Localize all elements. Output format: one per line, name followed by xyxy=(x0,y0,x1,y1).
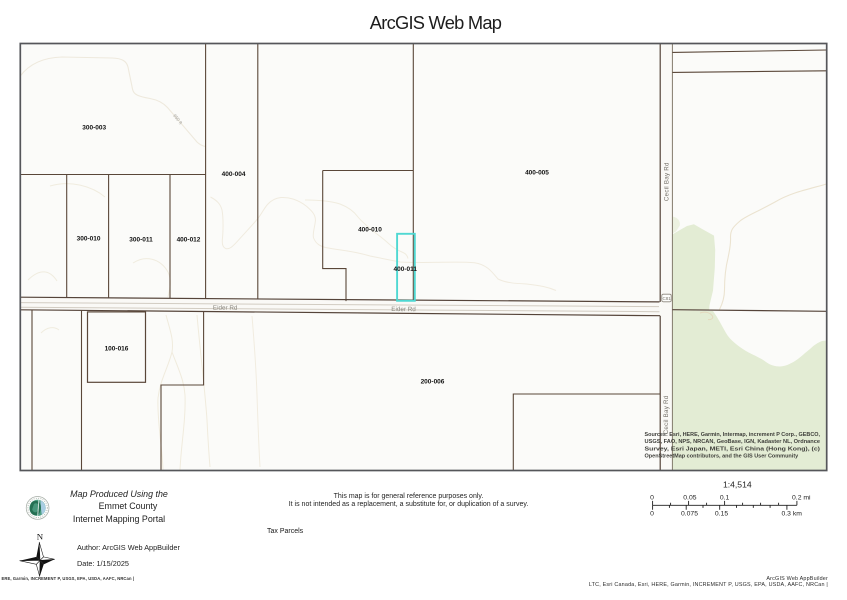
svg-text:0: 0 xyxy=(650,494,654,501)
svg-text:0: 0 xyxy=(650,511,654,518)
svg-text:Cecil Bay Rd: Cecil Bay Rd xyxy=(664,162,671,201)
svg-text:300-010: 300-010 xyxy=(77,235,101,242)
svg-text:200-006: 200-006 xyxy=(421,378,445,385)
svg-text:Eider Rd: Eider Rd xyxy=(391,306,416,313)
svg-text:Eider Rd: Eider Rd xyxy=(213,305,238,312)
svg-text:400-004: 400-004 xyxy=(222,171,246,178)
svg-text:100-016: 100-016 xyxy=(105,345,129,352)
svg-text:0.075: 0.075 xyxy=(681,511,698,518)
svg-text:300-011: 300-011 xyxy=(129,236,153,243)
svg-text:400-012: 400-012 xyxy=(177,236,201,243)
svg-text:Cecil Bay Rd: Cecil Bay Rd xyxy=(663,395,670,434)
svg-text:400-010: 400-010 xyxy=(358,227,382,234)
svg-text:0.15: 0.15 xyxy=(715,511,728,518)
svg-text:1:4,514: 1:4,514 xyxy=(723,480,752,490)
svg-text:0.1: 0.1 xyxy=(720,494,730,501)
svg-text:C81: C81 xyxy=(662,296,671,301)
svg-text:0.3 km: 0.3 km xyxy=(781,511,802,518)
svg-text:0.05: 0.05 xyxy=(683,494,696,501)
svg-text:OpenStreetMap contributors, an: OpenStreetMap contributors, and the GIS … xyxy=(645,454,800,460)
svg-text:0.2 mi: 0.2 mi xyxy=(792,494,811,501)
svg-text:Sources: Esri, HERE, Garmin, I: Sources: Esri, HERE, Garmin, Intermap, i… xyxy=(645,432,821,438)
svg-text:USGS, FAO, NPS, NRCAN, GeoBase: USGS, FAO, NPS, NRCAN, GeoBase, IGN, Kad… xyxy=(645,439,821,445)
svg-text:N: N xyxy=(37,531,44,541)
svg-text:400-011: 400-011 xyxy=(394,266,418,273)
svg-text:300-003: 300-003 xyxy=(82,124,106,131)
svg-text:Survey, Esri Japan, METI, Esri: Survey, Esri Japan, METI, Esri China (Ho… xyxy=(645,446,821,452)
svg-text:400-005: 400-005 xyxy=(525,170,549,177)
